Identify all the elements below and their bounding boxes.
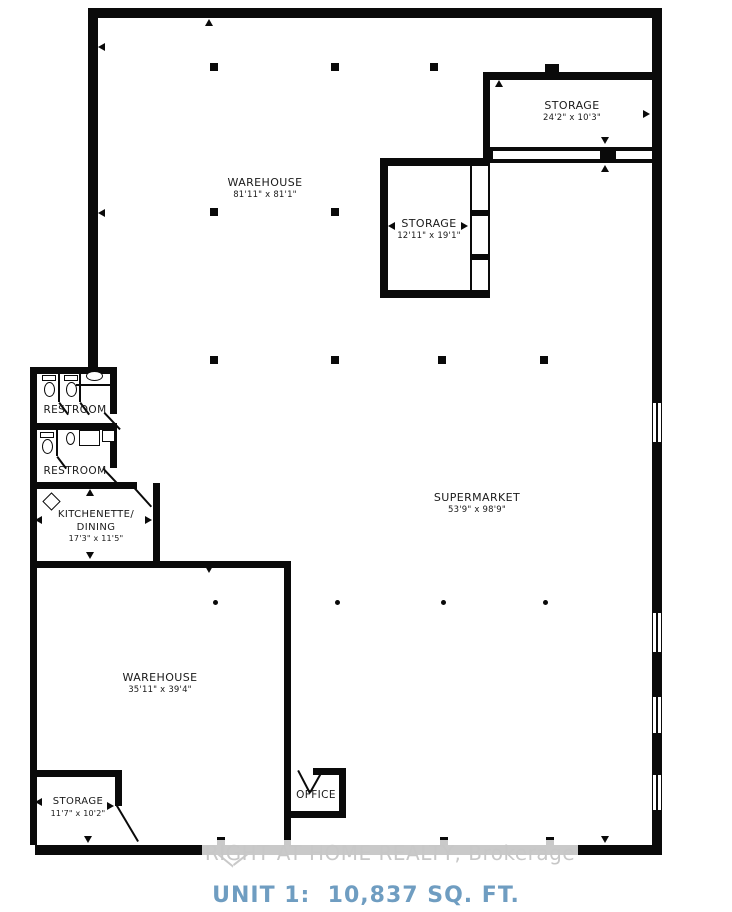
- window: [652, 697, 662, 733]
- wall-segment: [488, 166, 490, 290]
- dimension-tick: [86, 552, 94, 559]
- fixture-box: [42, 375, 56, 381]
- fixture-ellipse: [66, 432, 75, 445]
- dimension-tick: [98, 43, 105, 51]
- room-name: RESTROOM: [34, 465, 116, 478]
- room-label-restroom-upper: RESTROOM: [34, 404, 116, 417]
- fixture-box: [40, 432, 54, 438]
- wall-segment: [652, 652, 662, 697]
- wall-segment: [652, 733, 662, 775]
- room-dims: 24'2" x 10'3": [492, 113, 652, 124]
- wall-segment: [88, 18, 98, 370]
- room-name: STORAGE: [492, 99, 652, 113]
- dimension-tick: [601, 165, 609, 172]
- window: [652, 613, 662, 652]
- dimension-tick: [601, 836, 609, 843]
- column-marker: [438, 356, 446, 364]
- wall-segment: [380, 290, 477, 298]
- wall-segment: [30, 770, 122, 777]
- wall-segment: [380, 158, 477, 166]
- fixture-ellipse: [44, 382, 55, 397]
- wall-segment: [545, 64, 559, 72]
- fixture-ellipse: [66, 382, 77, 397]
- door-or-partition-line: [133, 486, 152, 507]
- wall-segment: [483, 72, 490, 151]
- room-name: WAREHOUSE: [60, 671, 260, 685]
- column-dot: [543, 600, 548, 605]
- wall-segment: [470, 254, 490, 260]
- wall-segment: [153, 483, 160, 568]
- window: [652, 775, 662, 810]
- dimension-tick: [601, 137, 609, 144]
- wall-segment: [284, 811, 346, 818]
- column-dot: [213, 600, 218, 605]
- room-label-storage-mid: STORAGE 12'11" x 19'1": [386, 217, 472, 241]
- door-or-partition-line: [76, 384, 110, 386]
- room-label-supermarket: SUPERMARKET 53'9" x 98'9": [377, 491, 577, 515]
- room-dims: 35'11" x 39'4": [60, 685, 260, 696]
- dimension-tick: [495, 80, 503, 87]
- wall-segment: [483, 159, 662, 163]
- room-name-line1: KITCHENETTE/: [40, 509, 152, 522]
- wall-segment: [600, 147, 616, 163]
- room-dims: 81'11" x 81'1": [165, 190, 365, 201]
- room-name-line2: DINING: [40, 522, 152, 535]
- window: [652, 403, 662, 442]
- kitchenette-sink-diamond: [42, 492, 60, 510]
- unit-area-caption: UNIT 1: 10,837 SQ. FT.: [0, 883, 732, 908]
- room-dims: 17'3" x 11'5": [40, 534, 152, 544]
- column-marker: [331, 208, 339, 216]
- room-name: OFFICE: [288, 789, 344, 802]
- dimension-tick: [205, 19, 213, 26]
- room-dims: 53'9" x 98'9": [377, 505, 577, 516]
- wall-segment: [652, 442, 662, 613]
- wall-segment: [470, 158, 490, 166]
- door-or-partition-line: [58, 374, 60, 402]
- column-marker: [210, 63, 218, 71]
- dimension-tick: [86, 489, 94, 496]
- column-marker: [210, 208, 218, 216]
- fixture-box: [79, 430, 100, 446]
- room-label-restroom-lower: RESTROOM: [34, 465, 116, 478]
- fixture-box: [64, 375, 78, 381]
- column-dot: [441, 600, 446, 605]
- room-label-storage-top-right: STORAGE 24'2" x 10'3": [492, 99, 652, 123]
- column-dot: [335, 600, 340, 605]
- brokerage-watermark: RIGHT AT HOME REALTY, Brokerage: [202, 840, 578, 867]
- column-marker: [540, 356, 548, 364]
- fixture-ellipse: [86, 371, 103, 381]
- door-or-partition-line: [56, 430, 58, 456]
- wall-segment: [30, 561, 290, 568]
- room-name: WAREHOUSE: [165, 176, 365, 190]
- fixture-box: [102, 430, 115, 442]
- dimension-tick: [84, 836, 92, 843]
- room-label-office: OFFICE: [288, 789, 344, 802]
- column-marker: [430, 63, 438, 71]
- wall-segment: [30, 423, 117, 430]
- room-name: STORAGE: [35, 796, 121, 809]
- wall-segment: [483, 147, 662, 151]
- room-dims: 12'11" x 19'1": [386, 231, 472, 242]
- wall-segment: [487, 72, 652, 80]
- column-marker: [210, 356, 218, 364]
- wall-segment: [470, 210, 490, 216]
- door-or-partition-line: [79, 374, 81, 402]
- room-label-storage-bottom-left: STORAGE 11'7" x 10'2": [35, 796, 121, 819]
- dimension-tick: [205, 566, 213, 573]
- wall-segment: [470, 290, 490, 298]
- room-label-warehouse-top: WAREHOUSE 81'11" x 81'1": [165, 176, 365, 200]
- room-dims: 11'7" x 10'2": [35, 809, 121, 819]
- room-name: RESTROOM: [34, 404, 116, 417]
- room-label-kitchenette: KITCHENETTE/ DINING 17'3" x 11'5": [40, 509, 152, 544]
- room-name: STORAGE: [386, 217, 472, 231]
- dimension-tick: [98, 209, 105, 217]
- room-name: SUPERMARKET: [377, 491, 577, 505]
- wall-segment: [30, 367, 117, 374]
- column-marker: [331, 356, 339, 364]
- wall-segment: [652, 18, 662, 403]
- wall-segment: [284, 561, 291, 845]
- wall-segment: [88, 8, 662, 18]
- fixture-ellipse: [42, 439, 53, 454]
- column-marker: [331, 63, 339, 71]
- floor-plan: WAREHOUSE 81'11" x 81'1" STORAGE 24'2" x…: [0, 0, 732, 912]
- room-label-warehouse-bottom: WAREHOUSE 35'11" x 39'4": [60, 671, 260, 695]
